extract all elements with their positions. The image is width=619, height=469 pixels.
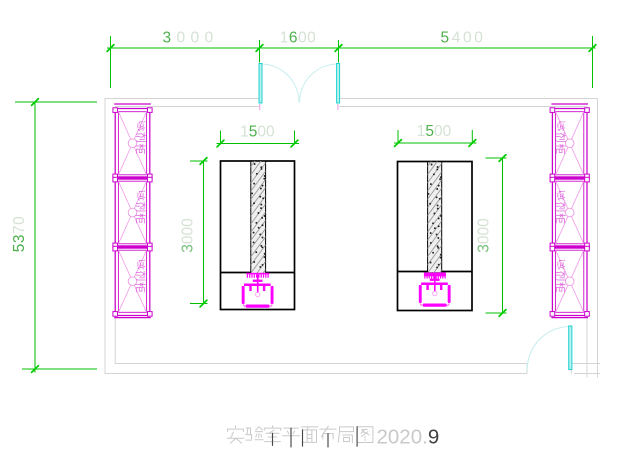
- svg-text:3000: 3000: [179, 218, 196, 253]
- svg-text:1500: 1500: [240, 124, 275, 141]
- svg-text:5400: 5400: [441, 30, 486, 47]
- svg-text:3000: 3000: [475, 218, 492, 253]
- svg-text:5370: 5370: [11, 216, 28, 253]
- svg-text:2020.9: 2020.9: [377, 426, 440, 449]
- svg-text:1500: 1500: [417, 123, 452, 140]
- svg-text:1600: 1600: [280, 30, 317, 47]
- svg-text:3000: 3000: [162, 30, 218, 47]
